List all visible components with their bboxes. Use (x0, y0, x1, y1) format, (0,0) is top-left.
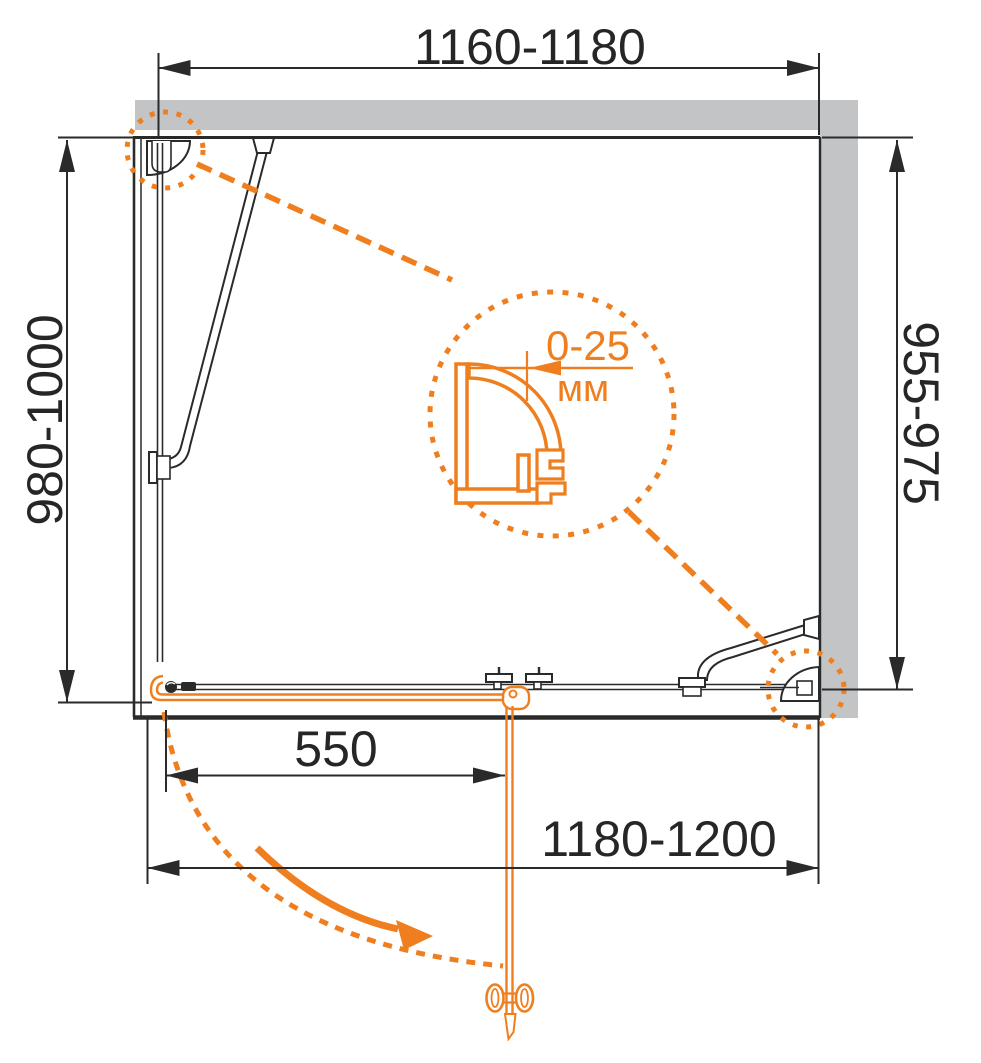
door-closed (151, 676, 504, 700)
profile-cross-section (456, 364, 565, 503)
dimension-left-label: 980-1000 (17, 314, 73, 525)
wall-top (135, 100, 858, 130)
plan-view-drawing: 0-25 мм 1160-1180 980-1000 955-975 550 (0, 0, 981, 1063)
adjustment-unit-label: мм (557, 368, 609, 410)
connector-line-bottom (629, 512, 777, 654)
door-bottom-tip (505, 1014, 516, 1039)
door-pivot-pin (165, 681, 196, 693)
adjustment-range-label: 0-25 (546, 322, 630, 369)
dimension-top-label: 1160-1180 (414, 19, 646, 75)
technical-drawing-page: 0-25 мм 1160-1180 980-1000 955-975 550 (0, 0, 981, 1063)
door-open (505, 706, 516, 1039)
door-hinge (503, 687, 529, 709)
door-handle (487, 985, 534, 1012)
enclosure-outline (133, 137, 820, 718)
side-glass-panel (158, 143, 163, 662)
connector-line-top (197, 164, 452, 280)
dimension-right-label: 955-975 (893, 321, 949, 505)
dimension-bottom-label: 1180-1200 (541, 811, 776, 867)
detail-callouts (127, 112, 844, 727)
top-left-wall-bracket (147, 141, 190, 175)
wall-right (820, 100, 858, 718)
door-hinge-clamps (486, 667, 552, 689)
swing-direction-arrow (257, 848, 398, 929)
dimension-door-label: 550 (294, 721, 377, 777)
swing-arrowhead (396, 920, 433, 950)
